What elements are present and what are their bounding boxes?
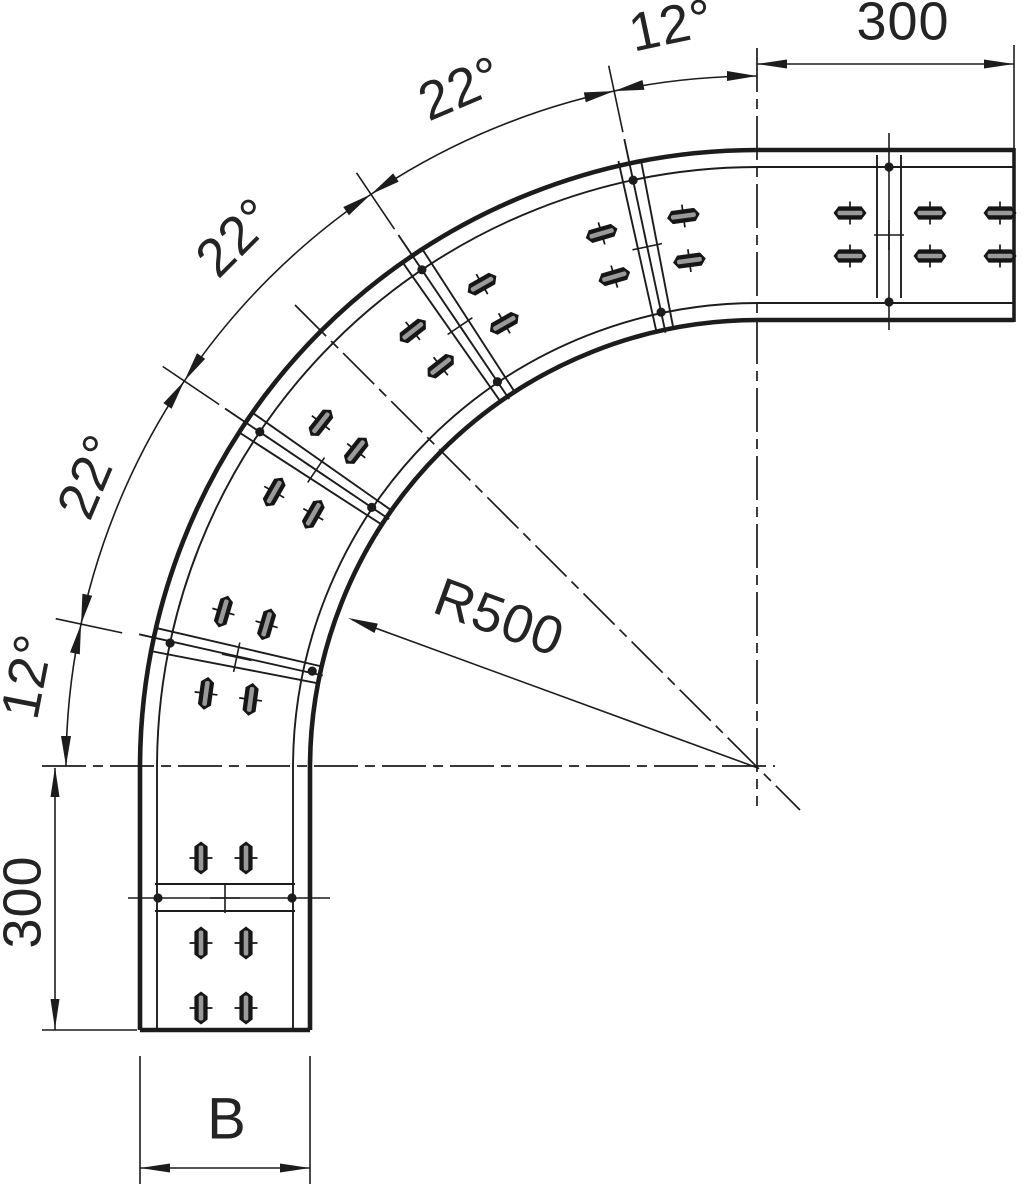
length-label-top-300: 300: [856, 0, 949, 51]
slot-hole: [834, 202, 867, 225]
centerlines: [42, 48, 800, 810]
slot-hole: [237, 682, 264, 718]
slot-hole: [583, 218, 621, 249]
slot-hole: [295, 494, 331, 534]
width-label-b: B: [207, 1086, 247, 1151]
slot-hole: [595, 261, 633, 292]
slot-hole: [484, 305, 524, 341]
bisector-centerline: [295, 305, 800, 810]
slot-hole: [914, 245, 947, 268]
angle-label-22-left: 22°: [45, 426, 133, 527]
slot-hole: [190, 992, 213, 1025]
slot-hole: [235, 842, 258, 875]
joint-56deg: [225, 409, 390, 524]
slot-hole: [914, 202, 947, 225]
joint-horizontal-leg: [874, 133, 904, 330]
angle-label-22-mid: 22°: [184, 186, 286, 288]
cable-tray-bend-drawing: 12° 22° 22° 22° 12° 300 300 R500 B: [0, 0, 1024, 1184]
slot-hole: [190, 842, 213, 875]
angle-label-22-top: 22°: [410, 44, 511, 132]
slot-hole: [337, 431, 376, 471]
slot-hole: [256, 472, 292, 512]
slot-hole: [672, 247, 708, 274]
slot-hole: [462, 266, 502, 302]
slot-hole: [235, 927, 258, 960]
length-label-left-300: 300: [0, 855, 52, 948]
slot-hole: [208, 593, 239, 631]
slot-hole: [251, 605, 282, 643]
dimension-texts: 12° 22° 22° 22° 12° 300 300 R500 B: [0, 0, 950, 1151]
angle-label-12-top: 12°: [624, 0, 719, 63]
slot-hole: [235, 992, 258, 1025]
slot-hole: [984, 202, 1017, 225]
slot-hole: [192, 676, 219, 712]
slot-hole: [834, 245, 867, 268]
slot-hole: [984, 245, 1017, 268]
joint-34deg: [398, 235, 513, 400]
slot-hole: [666, 202, 702, 229]
slot-hole: [302, 403, 341, 443]
slot-hole: [421, 347, 461, 386]
angle-label-12-left: 12°: [0, 629, 65, 724]
slot-hole: [393, 312, 433, 351]
joint-vertical-leg: [128, 883, 330, 913]
slot-hole: [190, 927, 213, 960]
joint-12deg: [618, 139, 673, 333]
radius-label-r500: R500: [426, 567, 572, 669]
technical-drawing-page: 12° 22° 22° 22° 12° 300 300 R500 B: [0, 0, 1024, 1184]
